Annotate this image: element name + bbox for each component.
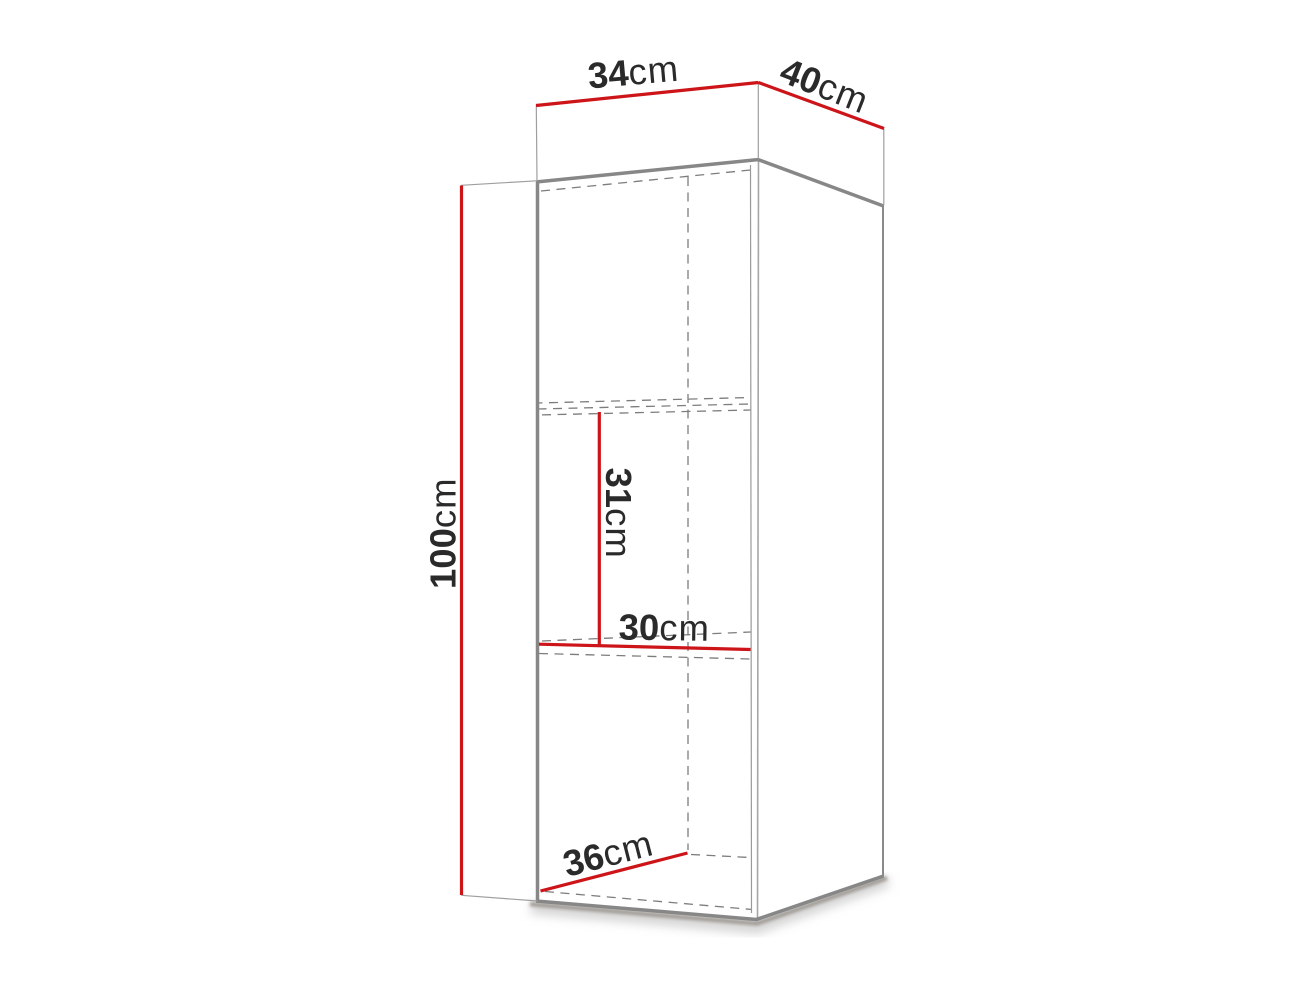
- svg-text:34cm: 34cm: [586, 48, 680, 97]
- svg-text:100cm: 100cm: [423, 477, 464, 589]
- svg-text:30cm: 30cm: [618, 607, 710, 649]
- svg-text:31cm: 31cm: [598, 468, 639, 559]
